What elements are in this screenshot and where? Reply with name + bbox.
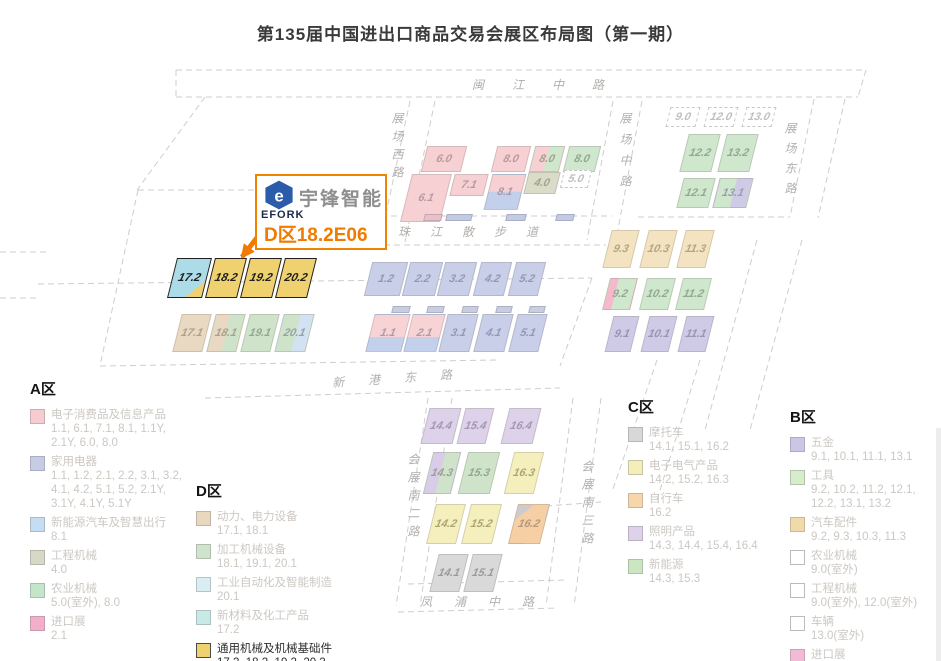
brand-name: 宇锋智能	[299, 184, 383, 211]
efork-logo-icon: e	[263, 179, 295, 211]
brand-callout-box: e 宇锋智能 EFORK D区18.2E06	[255, 174, 387, 250]
booth-code: D区18.2E06	[264, 220, 368, 247]
callout-arrow-icon	[0, 0, 941, 661]
svg-text:e: e	[274, 186, 283, 205]
exhibition-map-stage: 第135届中国进出口商品交易会展区布局图（第一期） 闽江中路 展场西路 展场中路…	[0, 0, 941, 661]
